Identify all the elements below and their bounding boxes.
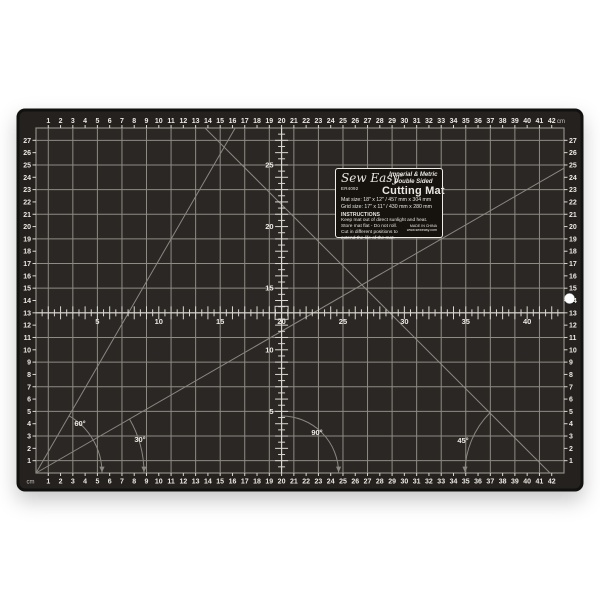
product-sku: ER4092 — [341, 186, 381, 191]
bottom-ruler-number: 3 — [71, 479, 75, 486]
center-horizontal-ruler-label: 20 — [277, 317, 285, 326]
bottom-ruler-number: 30 — [400, 479, 408, 486]
right-ruler-number: 13 — [569, 310, 577, 317]
bottom-ruler-number: 32 — [425, 479, 433, 486]
bottom-ruler-number: 20 — [278, 479, 286, 486]
center-horizontal-ruler-label: 30 — [400, 317, 408, 326]
top-ruler-number: 17 — [241, 118, 249, 125]
bottom-ruler-number: 16 — [229, 479, 237, 486]
center-vertical-ruler-label: 25 — [265, 160, 273, 169]
left-ruler-number: 12 — [23, 323, 31, 330]
right-ruler-number: 22 — [569, 199, 577, 206]
top-ruler-number: 19 — [265, 118, 273, 125]
bottom-ruler-number: 40 — [523, 479, 531, 486]
left-ruler-number: 24 — [23, 175, 31, 182]
top-ruler-number: 39 — [511, 118, 519, 125]
bottom-ruler-number: 1 — [46, 479, 50, 486]
top-ruler-number: 22 — [302, 118, 310, 125]
top-ruler-number: 15 — [216, 118, 224, 125]
bottom-ruler-number: 2 — [59, 479, 63, 486]
right-ruler-number: 21 — [569, 212, 577, 219]
bottom-ruler-number: 19 — [265, 479, 273, 486]
bottom-ruler-number: 42 — [548, 479, 556, 486]
top-ruler-number: 7 — [120, 118, 124, 125]
bottom-ruler-number: 28 — [376, 479, 384, 486]
left-ruler-number: 19 — [23, 236, 31, 243]
bottom-ruler-number: 5 — [95, 479, 99, 486]
top-ruler-number: 32 — [425, 118, 433, 125]
product-name: Cutting Mat — [382, 186, 445, 198]
angle-label-30: 30° — [134, 435, 145, 444]
left-ruler-number: 22 — [23, 199, 31, 206]
center-horizontal-ruler-label: 10 — [155, 317, 163, 326]
left-ruler-number: 14 — [23, 298, 31, 305]
cutting-mat-graphic: 5101520255101520253035401122334455667788… — [0, 0, 600, 600]
bottom-ruler-number: 24 — [327, 479, 335, 486]
bottom-ruler-number: 12 — [179, 479, 187, 486]
product-photo: 5101520255101520253035401122334455667788… — [0, 0, 600, 600]
top-ruler-number: 16 — [229, 118, 237, 125]
right-ruler-number: 16 — [569, 273, 577, 280]
right-ruler-number: 7 — [569, 384, 573, 391]
bottom-ruler-number: 41 — [536, 479, 544, 486]
top-ruler-number: 4 — [83, 118, 87, 125]
top-ruler-number: 20 — [278, 118, 286, 125]
left-ruler-number: 5 — [27, 409, 31, 416]
top-ruler-number: 31 — [413, 118, 421, 125]
right-ruler-number: 20 — [569, 224, 577, 231]
hang-hole — [565, 294, 575, 304]
bottom-ruler-number: 31 — [413, 479, 421, 486]
center-vertical-ruler-label: 15 — [265, 284, 273, 293]
top-ruler-number: 28 — [376, 118, 384, 125]
bottom-ruler-number: 6 — [108, 479, 112, 486]
top-ruler-number: 33 — [437, 118, 445, 125]
angle-label-45: 45° — [457, 436, 468, 445]
bottom-ruler-number: 25 — [339, 479, 347, 486]
bottom-ruler-number: 15 — [216, 479, 224, 486]
bottom-ruler-number: 29 — [388, 479, 396, 486]
brand-block: Sew Easy® ER4092 — [341, 172, 381, 191]
left-ruler-number: 4 — [27, 421, 31, 428]
bottom-ruler-number: 27 — [364, 479, 372, 486]
bottom-ruler-number: 13 — [192, 479, 200, 486]
top-ruler-number: 14 — [204, 118, 212, 125]
left-ruler-number: 8 — [27, 372, 31, 379]
right-ruler-number: 8 — [569, 372, 573, 379]
center-horizontal-ruler-label: 15 — [216, 317, 224, 326]
left-ruler-number: 20 — [23, 224, 31, 231]
bottom-ruler-number: 39 — [511, 479, 519, 486]
website-text: www.seweasy.com — [407, 228, 437, 232]
top-ruler-number: 12 — [179, 118, 187, 125]
center-horizontal-ruler-label: 40 — [523, 317, 531, 326]
right-ruler-number: 26 — [569, 150, 577, 157]
top-ruler-number: 3 — [71, 118, 75, 125]
product-title-block: Imperial & Metric Double Sided Cutting M… — [381, 172, 445, 197]
center-vertical-ruler-label: 5 — [269, 407, 273, 416]
top-ruler-number: 2 — [59, 118, 63, 125]
right-ruler-number: 15 — [569, 286, 577, 293]
top-ruler-number: 13 — [192, 118, 200, 125]
top-ruler-number: 24 — [327, 118, 335, 125]
label-header: Sew Easy® ER4092 Imperial & Metric Doubl… — [341, 172, 437, 197]
left-ruler-number: 10 — [23, 347, 31, 354]
left-ruler-number: 26 — [23, 150, 31, 157]
right-ruler-number: 27 — [569, 138, 577, 145]
center-horizontal-ruler-label: 25 — [339, 317, 347, 326]
left-ruler-number: 9 — [27, 360, 31, 367]
top-ruler-number: 25 — [339, 118, 347, 125]
product-label: Sew Easy® ER4092 Imperial & Metric Doubl… — [335, 168, 443, 238]
top-ruler-number: 23 — [315, 118, 323, 125]
angle-label-60: 60° — [74, 419, 85, 428]
grid-area — [36, 128, 564, 473]
left-ruler-number: 18 — [23, 249, 31, 256]
center-horizontal-ruler-label: 5 — [95, 317, 99, 326]
top-ruler-number: 21 — [290, 118, 298, 125]
left-ruler-number: 25 — [23, 162, 31, 169]
center-vertical-ruler-label: 10 — [265, 345, 273, 354]
top-ruler-number: 37 — [486, 118, 494, 125]
top-ruler-number: 5 — [95, 118, 99, 125]
right-ruler-number: 5 — [569, 409, 573, 416]
top-ruler-number: 30 — [400, 118, 408, 125]
left-ruler-number: 16 — [23, 273, 31, 280]
top-ruler-unit: cm — [557, 119, 565, 125]
left-ruler-number: 11 — [24, 335, 32, 342]
bottom-ruler-number: 18 — [253, 479, 261, 486]
right-ruler-number: 1 — [569, 458, 573, 465]
mat-size-text: Mat size: 18" x 12" / 457 mm x 304 mm — [341, 197, 437, 204]
bottom-ruler-number: 21 — [290, 479, 298, 486]
top-ruler-number: 6 — [108, 118, 112, 125]
right-ruler-number: 2 — [569, 446, 573, 453]
top-ruler-number: 26 — [351, 118, 359, 125]
left-ruler-number: 1 — [27, 458, 31, 465]
top-ruler-number: 10 — [155, 118, 163, 125]
top-ruler-number: 35 — [462, 118, 470, 125]
right-ruler-number: 3 — [569, 434, 573, 441]
bottom-ruler-number: 22 — [302, 479, 310, 486]
left-ruler-number: 27 — [23, 138, 31, 145]
bottom-ruler-number: 7 — [120, 479, 124, 486]
bottom-ruler-number: 9 — [145, 479, 149, 486]
top-ruler-number: 36 — [474, 118, 482, 125]
top-ruler-number: 40 — [523, 118, 531, 125]
tagline-line1: Imperial & Metric — [382, 172, 445, 179]
bottom-ruler-number: 33 — [437, 479, 445, 486]
bottom-ruler-number: 36 — [474, 479, 482, 486]
left-ruler-number: 2 — [27, 446, 31, 453]
top-ruler-number: 38 — [499, 118, 507, 125]
right-ruler-number: 17 — [569, 261, 577, 268]
left-ruler-number: 23 — [23, 187, 31, 194]
top-ruler-number: 8 — [132, 118, 136, 125]
bottom-ruler-unit: cm — [27, 480, 35, 486]
top-ruler-number: 27 — [364, 118, 372, 125]
left-ruler-number: 15 — [23, 286, 31, 293]
right-ruler-number: 12 — [569, 323, 577, 330]
top-ruler-number: 18 — [253, 118, 261, 125]
top-ruler-number: 34 — [450, 118, 458, 125]
bottom-ruler-number: 35 — [462, 479, 470, 486]
top-ruler-number: 9 — [145, 118, 149, 125]
bottom-ruler-number: 38 — [499, 479, 507, 486]
left-ruler-number: 3 — [27, 434, 31, 441]
top-ruler-number: 42 — [548, 118, 556, 125]
bottom-ruler-number: 11 — [167, 479, 175, 486]
right-ruler-number: 11 — [569, 335, 577, 342]
brand-logo: Sew Easy® — [341, 172, 381, 184]
bottom-ruler-number: 34 — [450, 479, 458, 486]
left-ruler-number: 7 — [27, 384, 31, 391]
right-ruler-number: 18 — [569, 249, 577, 256]
bottom-ruler-number: 4 — [83, 479, 87, 486]
bottom-ruler-number: 17 — [241, 479, 249, 486]
right-ruler-number: 24 — [569, 175, 577, 182]
right-ruler-number: 9 — [569, 360, 573, 367]
bottom-ruler-number: 14 — [204, 479, 212, 486]
right-ruler-number: 6 — [569, 397, 573, 404]
left-ruler-number: 21 — [23, 212, 31, 219]
right-ruler-number: 4 — [569, 421, 573, 428]
left-ruler-number: 6 — [27, 397, 31, 404]
bottom-ruler-number: 26 — [351, 479, 359, 486]
bottom-ruler-number: 8 — [132, 479, 136, 486]
right-ruler-number: 25 — [569, 162, 577, 169]
top-ruler-number: 41 — [536, 118, 544, 125]
center-horizontal-ruler-label: 35 — [462, 317, 470, 326]
grid-size-text: Grid size: 17" x 11" / 430 mm x 280 mm — [341, 204, 437, 211]
top-ruler-number: 11 — [167, 118, 175, 125]
left-ruler-number: 13 — [23, 310, 31, 317]
right-ruler-number: 10 — [569, 347, 577, 354]
bottom-ruler-number: 23 — [315, 479, 323, 486]
right-ruler-number: 23 — [569, 187, 577, 194]
angle-label-90: 90° — [311, 428, 322, 437]
top-ruler-number: 29 — [388, 118, 396, 125]
instruction-line: extend the life of the mat. — [341, 236, 437, 242]
bottom-ruler-number: 37 — [486, 479, 494, 486]
top-ruler-number: 1 — [46, 118, 50, 125]
right-ruler-number: 19 — [569, 236, 577, 243]
bottom-ruler-number: 10 — [155, 479, 163, 486]
center-vertical-ruler-label: 20 — [265, 222, 273, 231]
left-ruler-number: 17 — [23, 261, 31, 268]
